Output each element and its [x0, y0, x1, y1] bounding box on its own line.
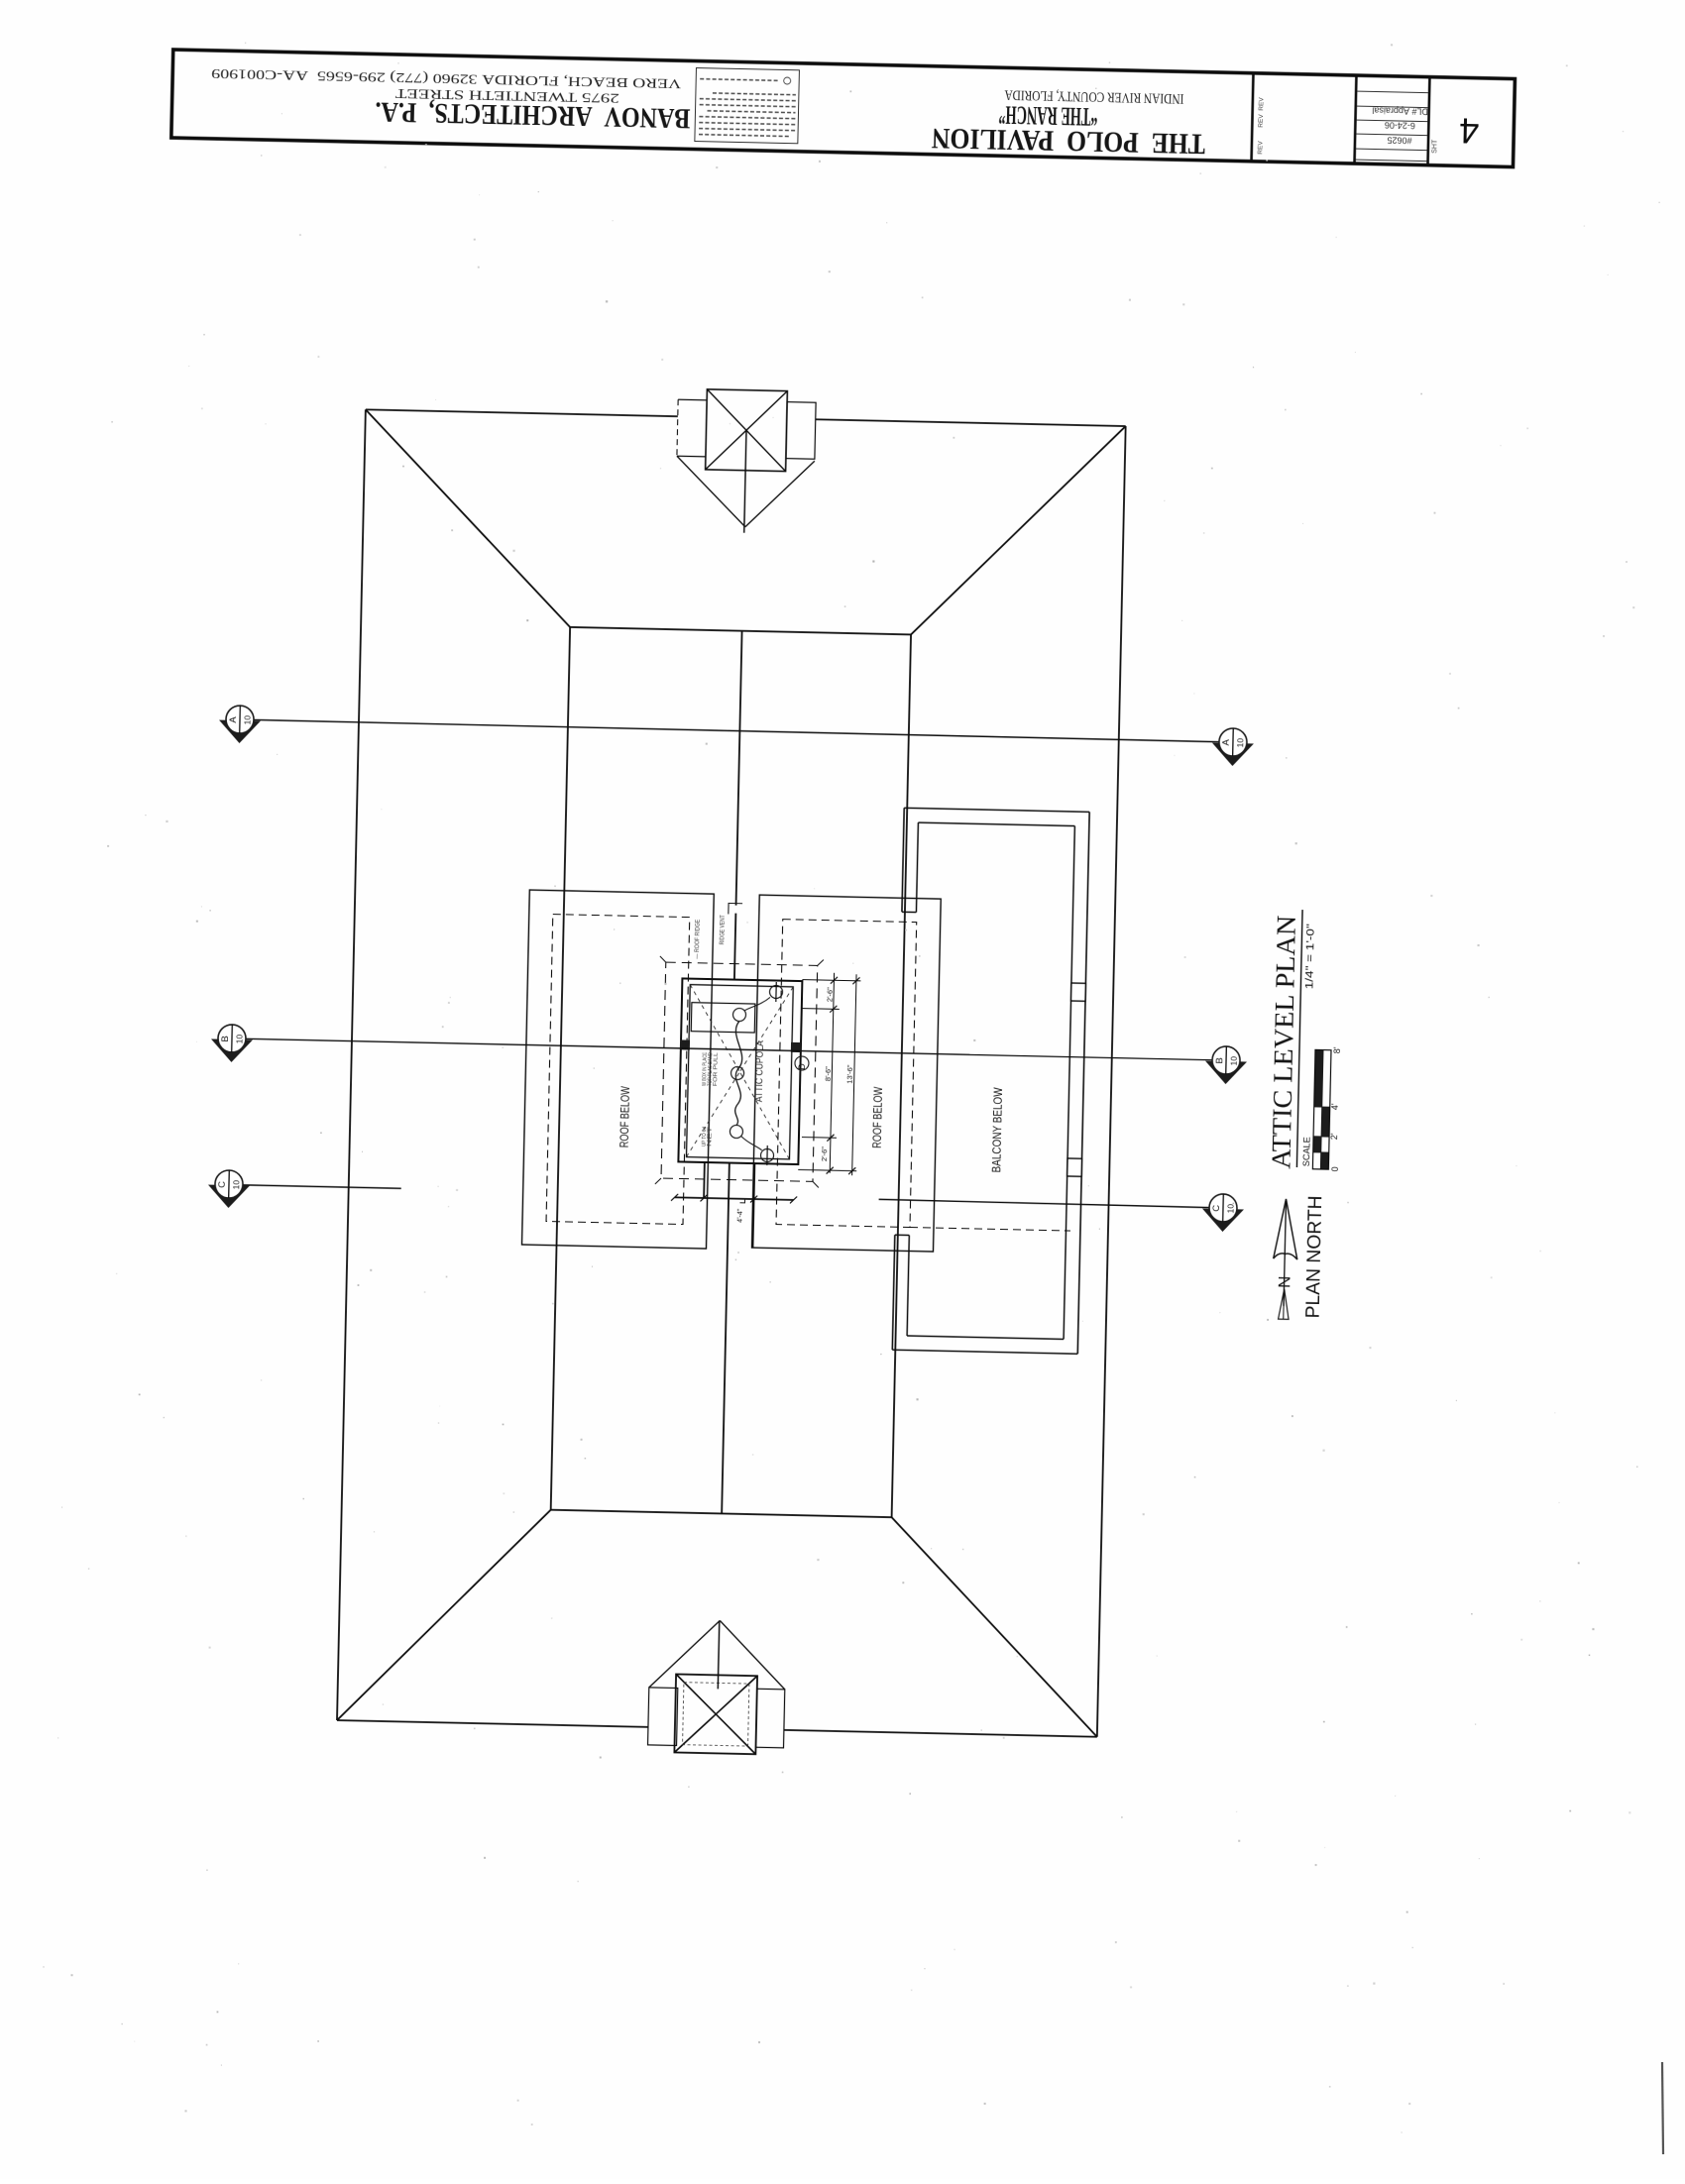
svg-text:ROOF BELOW: ROOF BELOW	[619, 1086, 632, 1147]
svg-text:2': 2'	[1329, 1133, 1339, 1140]
svg-text:D: D	[797, 1063, 807, 1070]
svg-text:8': 8'	[1332, 1046, 1342, 1053]
svg-text:10: 10	[1235, 738, 1245, 748]
svg-text:13'-6": 13'-6"	[845, 1064, 854, 1084]
svg-text:8'-6": 8'-6"	[824, 1066, 833, 1081]
svg-text:B: B	[1214, 1057, 1225, 1064]
svg-text:6-24-06: 6-24-06	[1385, 120, 1415, 131]
svg-text:RIDGE VENT: RIDGE VENT	[720, 915, 727, 944]
svg-text:#0625: #0625	[1387, 135, 1411, 146]
svg-text:A: A	[1221, 738, 1232, 745]
svg-text:NET: NET	[707, 1126, 713, 1147]
svg-text:1/4" = 1'-0": 1/4" = 1'-0"	[1303, 924, 1316, 989]
svg-text:C: C	[217, 1181, 228, 1188]
svg-text:ATTIC LEVEL PLAN: ATTIC LEVEL PLAN	[1266, 915, 1301, 1169]
svg-text:10: 10	[234, 1035, 244, 1044]
svg-text:C: C	[1211, 1205, 1222, 1212]
svg-text:4'-4": 4'-4"	[737, 1208, 744, 1223]
svg-text:BALCONY BELOW: BALCONY BELOW	[991, 1087, 1005, 1172]
svg-text:— ROOF RIDGE: — ROOF RIDGE	[695, 920, 702, 959]
svg-text:10: 10	[242, 715, 252, 725]
svg-text:10: 10	[1225, 1204, 1235, 1214]
svg-text:B: B	[220, 1036, 231, 1042]
svg-text:10: 10	[1228, 1056, 1238, 1066]
svg-text:PLAN NORTH: PLAN NORTH	[1303, 1195, 1327, 1318]
svg-text:2'-6": 2'-6"	[820, 1147, 829, 1161]
svg-text:SCALE: SCALE	[1301, 1137, 1313, 1166]
svg-text:ROOF BELOW: ROOF BELOW	[872, 1087, 885, 1148]
svg-text:A: A	[228, 715, 239, 722]
svg-text:4': 4'	[1330, 1103, 1340, 1110]
svg-text:REV: REV	[1258, 97, 1265, 111]
svg-text:4: 4	[1459, 110, 1480, 151]
svg-text:FOR PULL: FOR PULL	[713, 1051, 720, 1086]
svg-text:REV: REV	[1257, 141, 1264, 155]
svg-text:N: N	[1275, 1275, 1293, 1288]
svg-text:2'-6": 2'-6"	[825, 987, 834, 1002]
svg-text:10: 10	[231, 1180, 241, 1190]
svg-text:SHT: SHT	[1431, 139, 1438, 154]
svg-text:0: 0	[1330, 1166, 1340, 1171]
svg-text:DL# Appraisal: DL# Appraisal	[1372, 105, 1428, 116]
svg-text:REV: REV	[1258, 114, 1265, 128]
